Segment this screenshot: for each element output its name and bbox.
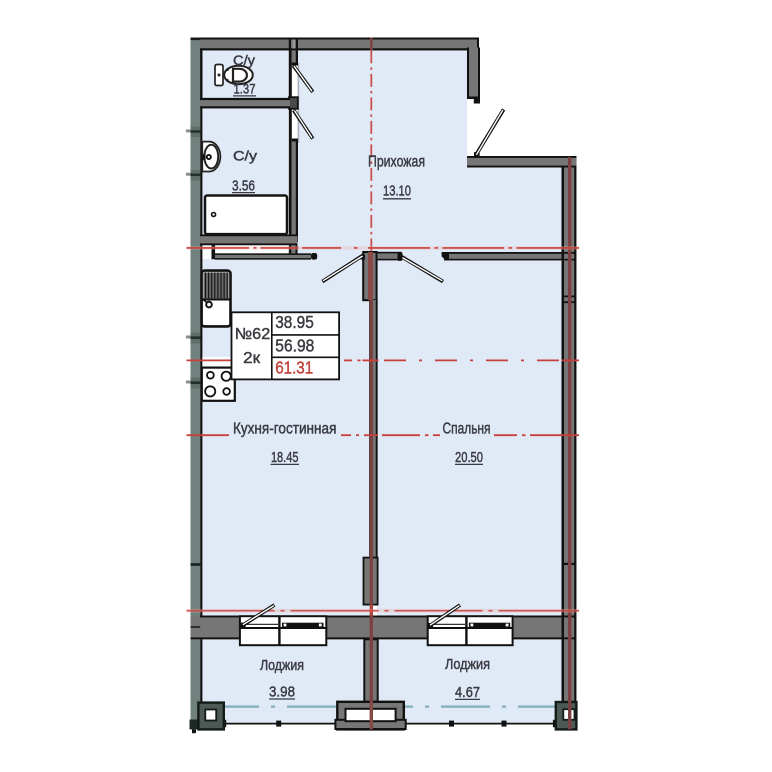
svg-text:3.56: 3.56 <box>232 177 255 194</box>
svg-text:18.45: 18.45 <box>271 449 299 466</box>
svg-text:3.98: 3.98 <box>269 684 295 701</box>
svg-text:20.50: 20.50 <box>455 449 483 466</box>
svg-text:С/у: С/у <box>233 147 257 163</box>
svg-text:1.37: 1.37 <box>234 81 256 97</box>
svg-text:Лоджия: Лоджия <box>260 657 304 674</box>
svg-text:61.31: 61.31 <box>275 358 313 378</box>
svg-text:Лоджия: Лоджия <box>445 656 490 673</box>
svg-text:Прихожая: Прихожая <box>368 153 425 170</box>
svg-text:Кухня-гостинная: Кухня-гостинная <box>233 421 337 438</box>
svg-text:38.95: 38.95 <box>275 312 314 332</box>
svg-text:С/у: С/у <box>233 52 255 68</box>
svg-text:56.98: 56.98 <box>275 336 314 356</box>
svg-text:№62: №62 <box>235 326 271 343</box>
svg-text:4.67: 4.67 <box>455 684 480 701</box>
svg-text:Спальня: Спальня <box>443 421 491 438</box>
svg-text:2к: 2к <box>243 350 261 367</box>
svg-text:13.10: 13.10 <box>383 183 411 200</box>
